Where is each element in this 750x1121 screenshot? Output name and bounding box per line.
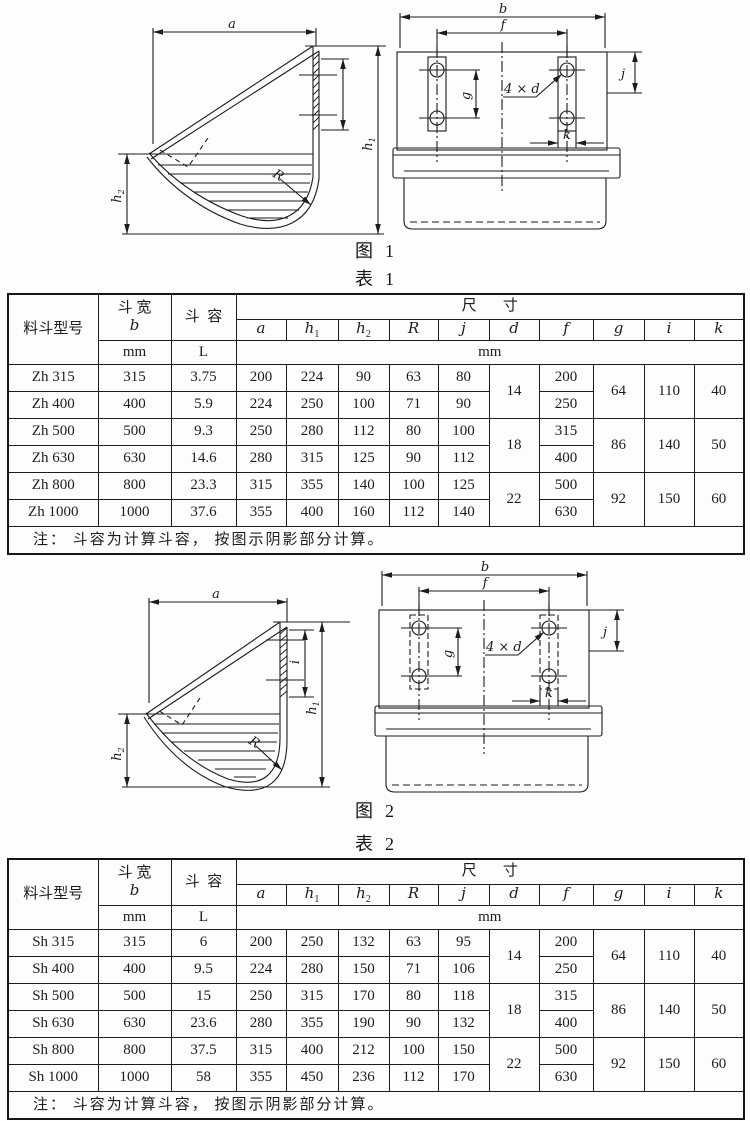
cell: 14 xyxy=(489,364,539,418)
table-row: Zh 315 315 3.75 200 224 90 63 80 14 200 … xyxy=(8,364,744,391)
cell: 3.75 xyxy=(171,364,236,391)
dim-label-h2: h2 xyxy=(110,747,126,760)
cell: 86 xyxy=(593,418,644,472)
cell: 80 xyxy=(389,983,438,1010)
scanned-standard-page: { "page": {"background": "#fdfdfd", "ink… xyxy=(0,0,750,1121)
cell: 71 xyxy=(389,391,438,418)
cell: 50 xyxy=(694,418,744,472)
cell: 170 xyxy=(338,983,389,1010)
cell: Sh 800 xyxy=(8,1037,98,1064)
cell: 5.9 xyxy=(171,391,236,418)
cell: 315 xyxy=(539,418,593,445)
cell: Sh 315 xyxy=(8,929,98,956)
header-dim-d: d xyxy=(489,319,539,340)
cell: 22 xyxy=(489,1037,539,1091)
cell: 132 xyxy=(338,929,389,956)
cell: 250 xyxy=(286,929,338,956)
cell: 95 xyxy=(438,929,489,956)
cell: 90 xyxy=(438,391,489,418)
cell: 500 xyxy=(539,1037,593,1064)
header-dim-d: d xyxy=(489,884,539,905)
dim-label-k: k xyxy=(545,686,553,701)
cell: Zh 800 xyxy=(8,472,98,499)
cell: Zh 630 xyxy=(8,445,98,472)
cell: 37.5 xyxy=(171,1037,236,1064)
header-dimensions: 尺 寸 xyxy=(236,294,744,319)
table-row: Zh 500 500 9.3 250 280 112 80 100 18 315… xyxy=(8,418,744,445)
cell: 630 xyxy=(539,499,593,526)
cell: 200 xyxy=(236,364,286,391)
cell: 315 xyxy=(286,983,338,1010)
dim-label-h1: h1 xyxy=(361,137,377,150)
cell: 112 xyxy=(389,499,438,526)
header-dim-h1: h1 xyxy=(286,884,338,905)
header-unit-L: L xyxy=(171,340,236,364)
cell: 90 xyxy=(338,364,389,391)
cell: 190 xyxy=(338,1010,389,1037)
table-note: 注： 斗容为计算斗容， 按图示阴影部分计算。 xyxy=(8,526,744,554)
cell: 280 xyxy=(286,418,338,445)
cell: Sh 400 xyxy=(8,956,98,983)
header-dim-a: a xyxy=(236,884,286,905)
cell: 280 xyxy=(286,956,338,983)
header-dim-a: a xyxy=(236,319,286,340)
cell: 160 xyxy=(338,499,389,526)
cell: 224 xyxy=(286,364,338,391)
cell: 500 xyxy=(98,983,171,1010)
cell: 250 xyxy=(539,391,593,418)
cell: Sh 1000 xyxy=(8,1064,98,1091)
cell: 118 xyxy=(438,983,489,1010)
cell: Zh 315 xyxy=(8,364,98,391)
cell: 630 xyxy=(98,445,171,472)
cell: 15 xyxy=(171,983,236,1010)
cell: 1000 xyxy=(98,1064,171,1091)
cell: 100 xyxy=(389,1037,438,1064)
table-row: Sh 315 315 6 200 250 132 63 95 14 200 64… xyxy=(8,929,744,956)
table-row: Sh 500 500 15 250 315 170 80 118 18 315 … xyxy=(8,983,744,1010)
cell: 250 xyxy=(539,956,593,983)
figure1-front-view: b f 4 × d g j k xyxy=(390,0,670,238)
table-row: Sh 800 800 37.5 315 400 212 100 150 22 5… xyxy=(8,1037,744,1064)
header-capacity: 斗 容 xyxy=(171,294,236,340)
cell: 40 xyxy=(694,929,744,983)
cell: 110 xyxy=(644,364,694,418)
cell: Zh 400 xyxy=(8,391,98,418)
header-width: 斗 宽b xyxy=(98,294,171,340)
cell: 6 xyxy=(171,929,236,956)
cell: Sh 630 xyxy=(8,1010,98,1037)
cell: 800 xyxy=(98,472,171,499)
dim-label-i: i xyxy=(288,660,303,664)
cell: 80 xyxy=(438,364,489,391)
header-unit-L: L xyxy=(171,905,236,929)
cell: 200 xyxy=(236,929,286,956)
cell: 140 xyxy=(438,499,489,526)
header-width: 斗 宽b xyxy=(98,859,171,905)
cell: 92 xyxy=(593,472,644,526)
cell: 112 xyxy=(389,1064,438,1091)
header-dimensions: 尺 寸 xyxy=(236,859,744,884)
figure2-front-view: b f 4 × d g j k xyxy=(372,558,652,800)
dim-label-j: j xyxy=(600,625,607,640)
header-dim-g: g xyxy=(593,884,644,905)
cell: 140 xyxy=(644,418,694,472)
cell: 150 xyxy=(644,472,694,526)
header-dim-j: j xyxy=(438,319,489,340)
header-unit-mm: mm xyxy=(98,340,171,364)
cell: 37.6 xyxy=(171,499,236,526)
header-dim-i: i xyxy=(644,319,694,340)
cell: 400 xyxy=(98,956,171,983)
cell: 315 xyxy=(539,983,593,1010)
holes-callout: 4 × d xyxy=(503,82,540,97)
cell: 250 xyxy=(236,983,286,1010)
cell: 400 xyxy=(286,499,338,526)
cell: 60 xyxy=(694,1037,744,1091)
dim-label-b: b xyxy=(499,2,507,17)
cell: 280 xyxy=(236,445,286,472)
cell: 500 xyxy=(98,418,171,445)
dim-label-g: g xyxy=(441,650,456,658)
cell: 150 xyxy=(338,956,389,983)
cell: 250 xyxy=(286,391,338,418)
table-1: 料斗型号 斗 宽b 斗 容 尺 寸 a h1 h2 R j d f g i k … xyxy=(7,293,745,555)
cell: 125 xyxy=(338,445,389,472)
cell: 86 xyxy=(593,983,644,1037)
cell: 64 xyxy=(593,364,644,418)
header-unit-mm-dims: mm xyxy=(236,905,744,929)
cell: 132 xyxy=(438,1010,489,1037)
header-row-1: 料斗型号 斗 宽b 斗 容 尺 寸 xyxy=(8,294,744,319)
cell: 150 xyxy=(644,1037,694,1091)
cell: 355 xyxy=(236,499,286,526)
cell: 40 xyxy=(694,364,744,418)
cell: 90 xyxy=(389,445,438,472)
dim-label-b: b xyxy=(481,560,489,575)
cell: 400 xyxy=(98,391,171,418)
cell: 355 xyxy=(236,1064,286,1091)
cell: 92 xyxy=(593,1037,644,1091)
header-dim-f: f xyxy=(539,319,593,340)
cell: 100 xyxy=(389,472,438,499)
header-row-1: 料斗型号 斗 宽b 斗 容 尺 寸 xyxy=(8,859,744,884)
cell: Zh 1000 xyxy=(8,499,98,526)
header-dim-R: R xyxy=(389,884,438,905)
cell: 224 xyxy=(236,956,286,983)
dim-label-a: a xyxy=(212,587,220,602)
header-capacity: 斗 容 xyxy=(171,859,236,905)
cell: 100 xyxy=(338,391,389,418)
cell: 1000 xyxy=(98,499,171,526)
cell: 315 xyxy=(236,472,286,499)
cell: 63 xyxy=(389,364,438,391)
cell: 250 xyxy=(236,418,286,445)
header-dim-h2: h2 xyxy=(338,319,389,340)
header-dim-i: i xyxy=(644,884,694,905)
header-dim-j: j xyxy=(438,884,489,905)
cell: 355 xyxy=(286,472,338,499)
holes-callout: 4 × d xyxy=(485,640,522,655)
cell: 23.6 xyxy=(171,1010,236,1037)
cell: 212 xyxy=(338,1037,389,1064)
cell: 23.3 xyxy=(171,472,236,499)
figure1-side-view: a R h1 h2 xyxy=(100,2,390,238)
cell: 236 xyxy=(338,1064,389,1091)
cell: 110 xyxy=(644,929,694,983)
cell: 315 xyxy=(236,1037,286,1064)
dim-label-f: f xyxy=(482,576,490,591)
cell: 18 xyxy=(489,418,539,472)
header-row-3: mm L mm xyxy=(8,905,744,929)
table-2: 料斗型号 斗 宽b 斗 容 尺 寸 a h1 h2 R j d f g i k … xyxy=(7,858,745,1120)
header-dim-R: R xyxy=(389,319,438,340)
cell: Sh 500 xyxy=(8,983,98,1010)
note-row: 注： 斗容为计算斗容， 按图示阴影部分计算。 xyxy=(8,526,744,554)
cell: 630 xyxy=(539,1064,593,1091)
cell: 150 xyxy=(438,1037,489,1064)
table-row: Zh 800 800 23.3 315 355 140 100 125 22 5… xyxy=(8,472,744,499)
cell: 170 xyxy=(438,1064,489,1091)
dim-label-k: k xyxy=(563,128,571,143)
cell: 50 xyxy=(694,983,744,1037)
cell: 280 xyxy=(236,1010,286,1037)
cell: 90 xyxy=(389,1010,438,1037)
cell: 125 xyxy=(438,472,489,499)
header-dim-k: k xyxy=(694,319,744,340)
cell: 800 xyxy=(98,1037,171,1064)
cell: 112 xyxy=(338,418,389,445)
cell: 22 xyxy=(489,472,539,526)
cell: 200 xyxy=(539,929,593,956)
cell: 106 xyxy=(438,956,489,983)
figure2-side-view: a R i h1 h2 xyxy=(98,558,388,800)
table-note: 注： 斗容为计算斗容， 按图示阴影部分计算。 xyxy=(8,1091,744,1119)
cell: 71 xyxy=(389,956,438,983)
cell: 9.5 xyxy=(171,956,236,983)
cell: 400 xyxy=(539,445,593,472)
header-unit-mm: mm xyxy=(98,905,171,929)
cell: 315 xyxy=(98,929,171,956)
dim-label-j: j xyxy=(618,67,625,82)
header-model: 料斗型号 xyxy=(8,294,98,364)
table2-caption: 表 2 xyxy=(0,830,750,856)
figure2-caption: 图 2 xyxy=(0,797,750,823)
cell: 100 xyxy=(438,418,489,445)
cell: 140 xyxy=(338,472,389,499)
cell: Zh 500 xyxy=(8,418,98,445)
dim-label-h2: h2 xyxy=(110,189,126,202)
cell: 400 xyxy=(539,1010,593,1037)
cell: 14.6 xyxy=(171,445,236,472)
header-unit-mm-dims: mm xyxy=(236,340,744,364)
dim-label-g: g xyxy=(459,92,474,100)
dim-label-h1: h1 xyxy=(305,701,321,714)
cell: 64 xyxy=(593,929,644,983)
cell: 224 xyxy=(236,391,286,418)
cell: 60 xyxy=(694,472,744,526)
header-dim-g: g xyxy=(593,319,644,340)
table1-caption: 表 1 xyxy=(0,265,750,291)
cell: 200 xyxy=(539,364,593,391)
cell: 630 xyxy=(98,1010,171,1037)
cell: 315 xyxy=(98,364,171,391)
cell: 14 xyxy=(489,929,539,983)
header-model: 料斗型号 xyxy=(8,859,98,929)
header-row-3: mm L mm xyxy=(8,340,744,364)
cell: 140 xyxy=(644,983,694,1037)
cell: 63 xyxy=(389,929,438,956)
header-dim-h1: h1 xyxy=(286,319,338,340)
cell: 500 xyxy=(539,472,593,499)
header-dim-h2: h2 xyxy=(338,884,389,905)
cell: 450 xyxy=(286,1064,338,1091)
cell: 400 xyxy=(286,1037,338,1064)
cell: 9.3 xyxy=(171,418,236,445)
dim-label-a: a xyxy=(228,17,236,32)
dim-label-f: f xyxy=(500,18,508,33)
cell: 18 xyxy=(489,983,539,1037)
cell: 80 xyxy=(389,418,438,445)
header-dim-f: f xyxy=(539,884,593,905)
cell: 58 xyxy=(171,1064,236,1091)
figure1-caption: 图 1 xyxy=(0,237,750,263)
cell: 355 xyxy=(286,1010,338,1037)
cell: 315 xyxy=(286,445,338,472)
cell: 112 xyxy=(438,445,489,472)
header-dim-k: k xyxy=(694,884,744,905)
note-row: 注： 斗容为计算斗容， 按图示阴影部分计算。 xyxy=(8,1091,744,1119)
